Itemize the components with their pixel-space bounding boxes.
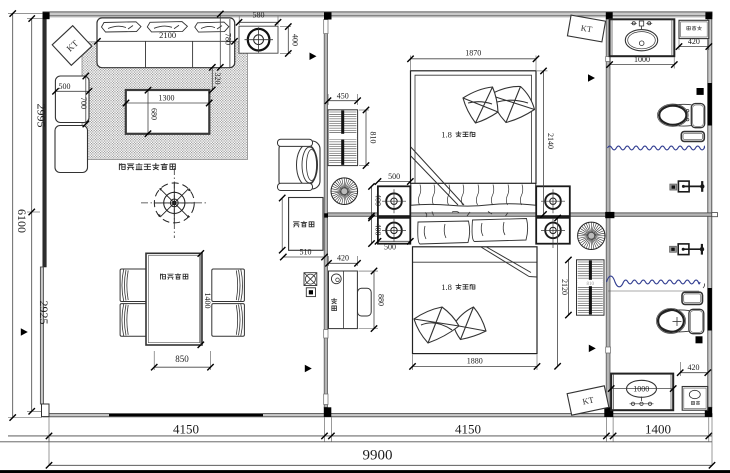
svg-text:1.8: 1.8 [441, 282, 452, 292]
svg-text:2995: 2995 [35, 104, 49, 128]
svg-text:2120: 2120 [560, 279, 569, 295]
svg-text:1880: 1880 [467, 357, 483, 366]
svg-text:420: 420 [688, 363, 700, 372]
svg-text:680: 680 [150, 108, 159, 120]
svg-text:580: 580 [253, 11, 265, 20]
svg-text:320: 320 [213, 73, 222, 85]
svg-text:9900: 9900 [363, 447, 393, 463]
svg-text:510: 510 [300, 248, 312, 257]
svg-text:880: 880 [377, 294, 386, 306]
svg-text:6100: 6100 [15, 209, 29, 233]
svg-text:780: 780 [224, 33, 233, 45]
svg-text:2140: 2140 [546, 133, 555, 149]
svg-text:450: 450 [337, 91, 349, 100]
svg-text:2925: 2925 [37, 301, 51, 325]
svg-text:810: 810 [587, 282, 595, 287]
svg-text:500: 500 [388, 172, 400, 181]
svg-text:4150: 4150 [173, 422, 199, 437]
svg-text:1400: 1400 [645, 422, 671, 437]
svg-text:500: 500 [59, 82, 71, 91]
svg-text:810: 810 [368, 132, 377, 144]
svg-text:1870: 1870 [465, 49, 481, 58]
svg-text:420: 420 [688, 37, 700, 46]
svg-text:1400: 1400 [203, 293, 212, 309]
svg-text:1.8: 1.8 [441, 130, 452, 140]
svg-text:1300: 1300 [159, 93, 175, 102]
svg-text:4150: 4150 [455, 422, 481, 437]
svg-text:850: 850 [175, 354, 189, 364]
svg-text:1000: 1000 [633, 385, 649, 394]
svg-text:1000: 1000 [634, 55, 650, 64]
svg-text:2100: 2100 [159, 30, 176, 40]
svg-text:420: 420 [337, 254, 349, 263]
svg-text:400: 400 [291, 34, 300, 46]
svg-text:700: 700 [79, 97, 88, 109]
svg-text:400: 400 [374, 224, 383, 236]
svg-text:400: 400 [374, 194, 383, 206]
svg-text:500: 500 [384, 243, 396, 252]
